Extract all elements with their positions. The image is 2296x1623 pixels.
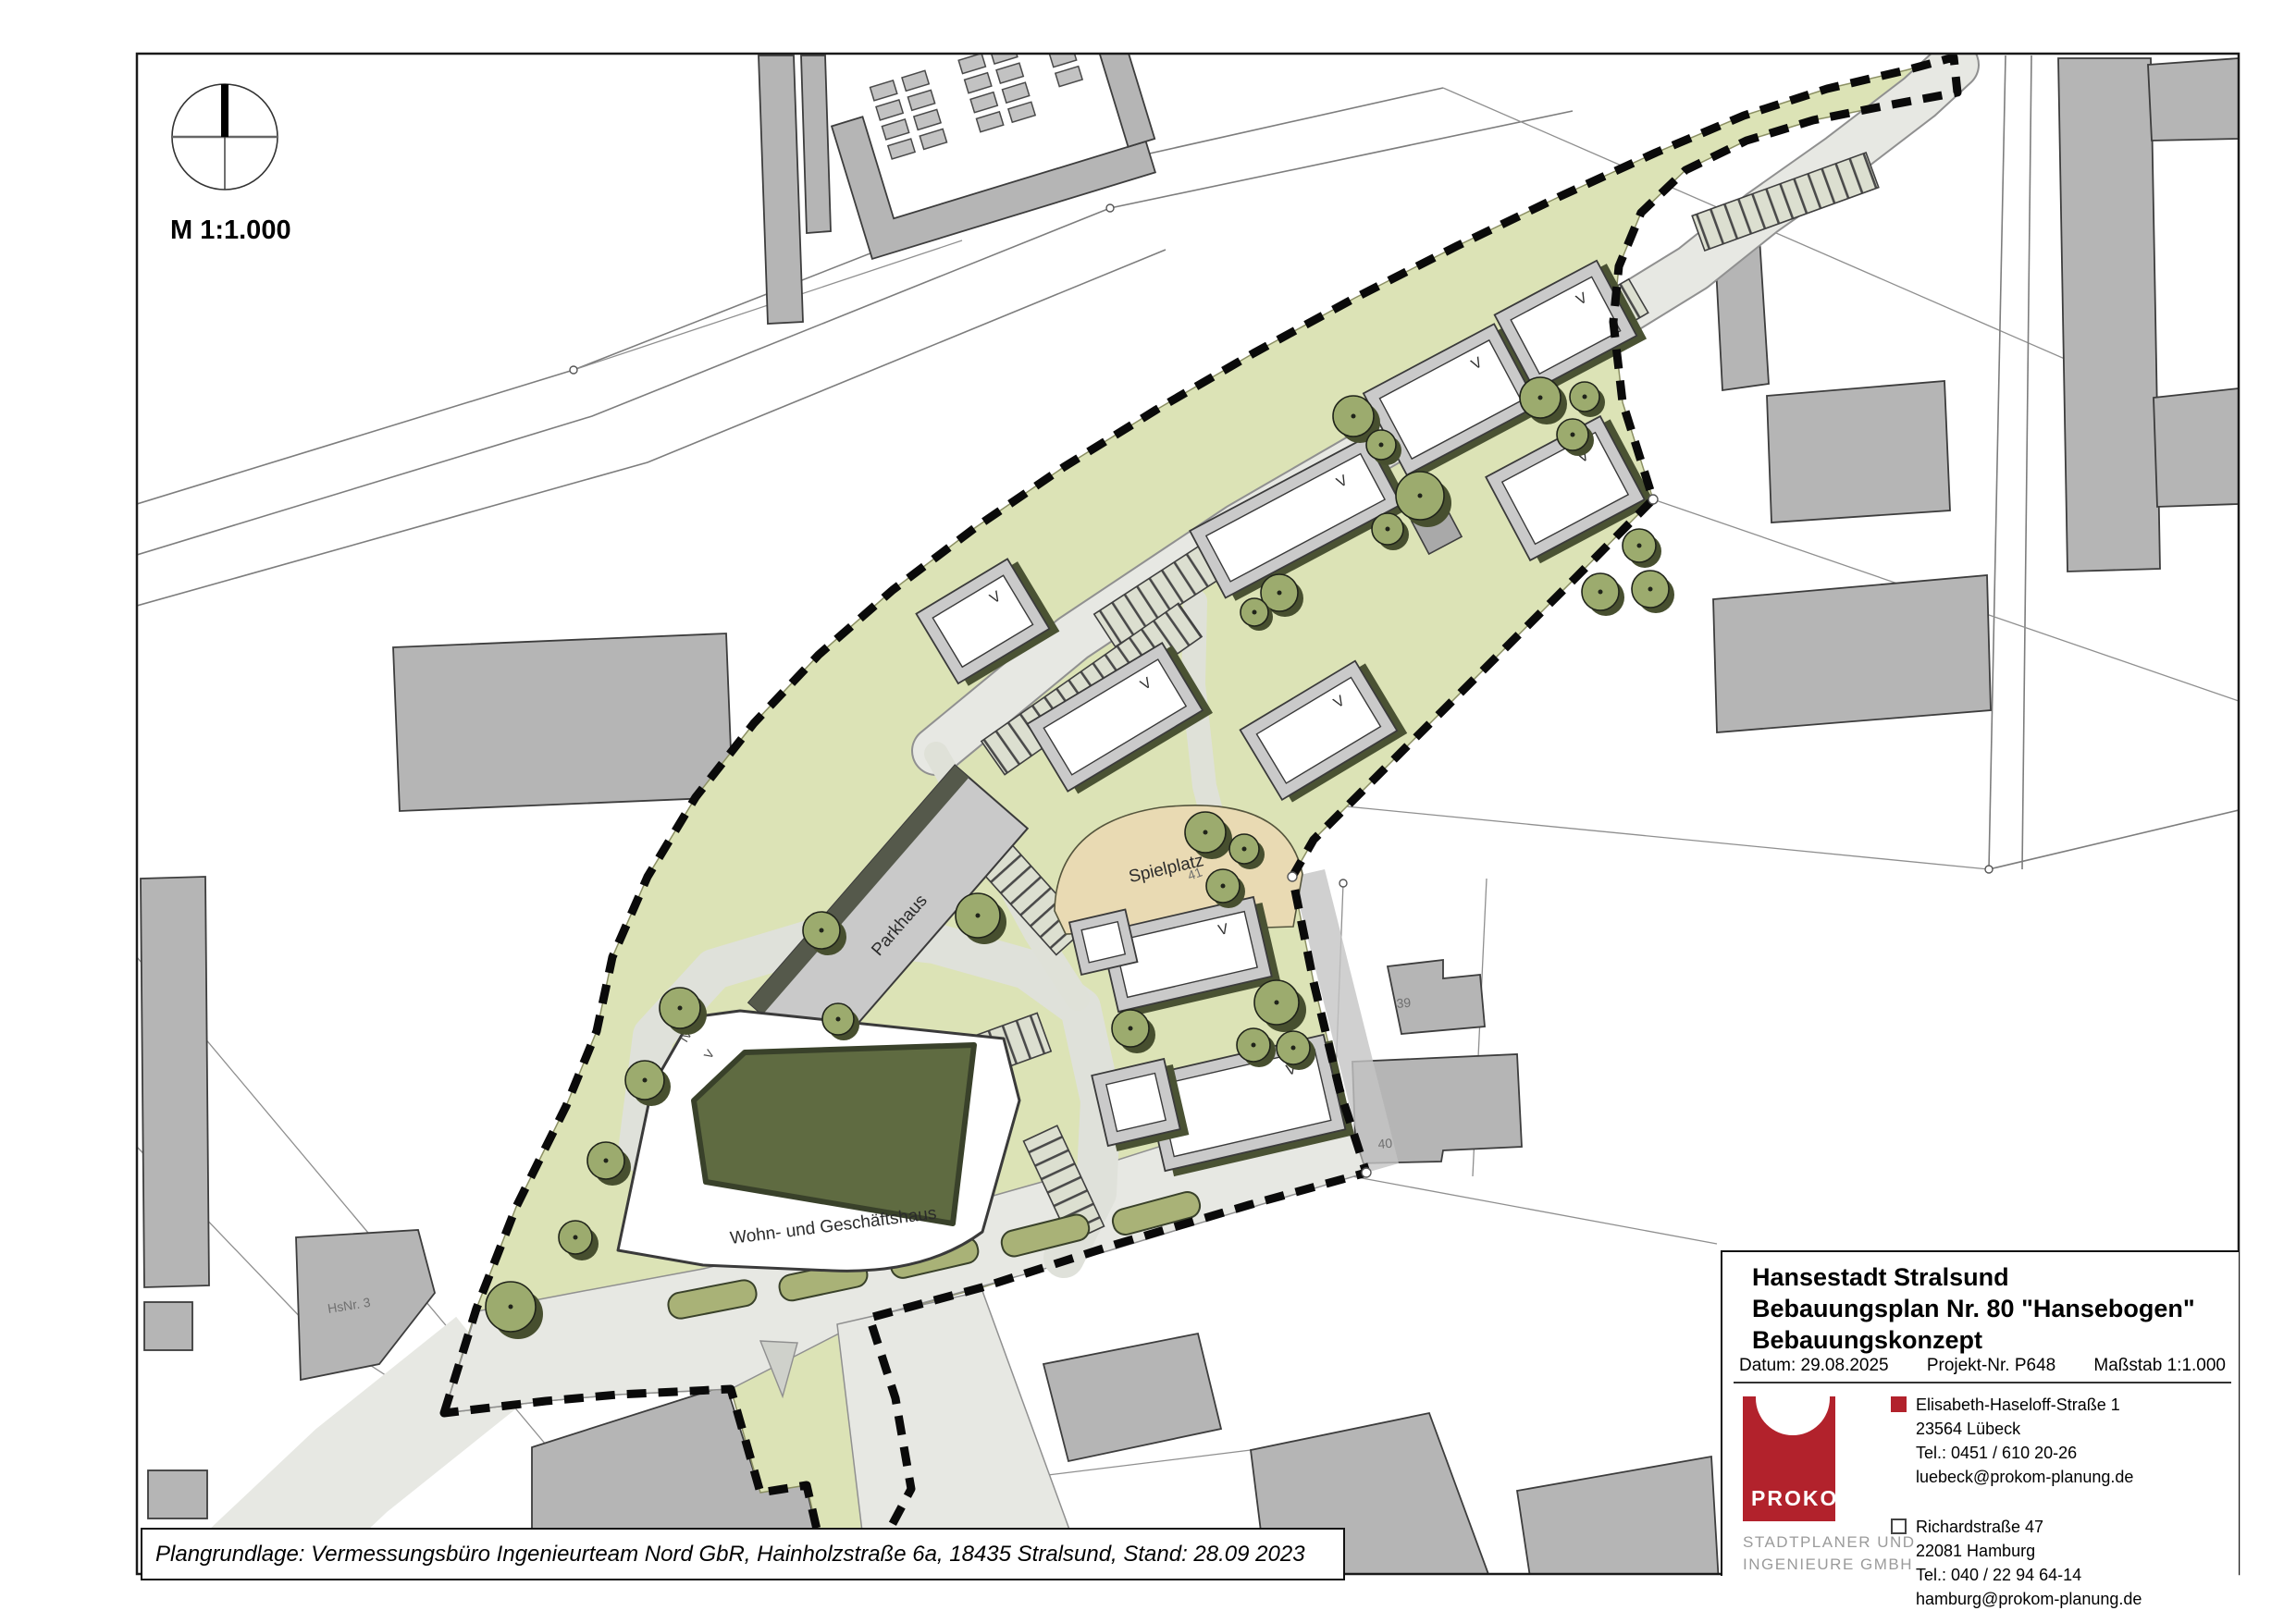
title-plan: Bebauungsplan Nr. 80 "Hansebogen" — [1752, 1293, 2195, 1324]
title-concept: Bebauungskonzept — [1752, 1324, 2195, 1356]
source-note-box: Plangrundlage: Vermessungsbüro Ingenieur… — [141, 1528, 1345, 1580]
office1-city: 23564 Lübeck — [1916, 1417, 2133, 1441]
prokom-logo-icon: PROKOM — [1743, 1396, 1835, 1521]
office-hamburg-bullet-icon — [1891, 1518, 1907, 1534]
office1-street: Elisabeth-Haseloff-Straße 1 — [1916, 1393, 2133, 1417]
office2-city: 22081 Hamburg — [1916, 1539, 2142, 1563]
title-block-meta: Datum: 29.08.2025 Projekt-Nr. P648 Maßst… — [1735, 1356, 2229, 1376]
office-addresses: Elisabeth-Haseloff-Straße 1 23564 Lübeck… — [1891, 1393, 2233, 1623]
scale-note-label: Maßstab 1:1.000 — [2093, 1356, 2226, 1376]
scale-label: M 1:1.000 — [170, 215, 291, 245]
project-number-label: Projekt-Nr. P648 — [1927, 1356, 2055, 1376]
title-block-rule — [1734, 1382, 2231, 1383]
date-label: Datum: 29.08.2025 — [1739, 1356, 1889, 1376]
plan-sheet: Parkhaus Wohn- und Geschäftshaus IV V V … — [0, 0, 2296, 1623]
parcel-39-label: 39 — [1396, 995, 1412, 1011]
north-needle-icon — [221, 84, 228, 137]
title-block-titles: Hansestadt Stralsund Bebauungsplan Nr. 8… — [1752, 1261, 2195, 1356]
prokom-logo-text: PROKOM — [1751, 1486, 1835, 1510]
office-luebeck-bullet-icon — [1891, 1396, 1907, 1412]
north-compass — [172, 84, 278, 190]
office2-tel: Tel.: 040 / 22 94 64-14 — [1916, 1563, 2142, 1587]
office-hamburg: Richardstraße 47 22081 Hamburg Tel.: 040… — [1891, 1515, 2233, 1611]
office1-tel: Tel.: 0451 / 610 20-26 — [1916, 1441, 2133, 1465]
office2-street: Richardstraße 47 — [1916, 1515, 2142, 1539]
wohn-geschaeftshaus: Wohn- und Geschäftshaus IV V — [618, 1011, 1019, 1271]
title-block: Hansestadt Stralsund Bebauungsplan Nr. 8… — [1721, 1250, 2239, 1576]
title-city: Hansestadt Stralsund — [1752, 1261, 2195, 1293]
garage-complex — [822, 6, 1165, 259]
source-note-text: Plangrundlage: Vermessungsbüro Ingenieur… — [155, 1542, 1305, 1568]
office-luebeck: Elisabeth-Haseloff-Straße 1 23564 Lübeck… — [1891, 1393, 2233, 1489]
parcel-40-label: 40 — [1377, 1136, 1393, 1151]
office2-email: hamburg@prokom-planung.de — [1916, 1587, 2142, 1611]
office1-email: luebeck@prokom-planung.de — [1916, 1465, 2133, 1489]
